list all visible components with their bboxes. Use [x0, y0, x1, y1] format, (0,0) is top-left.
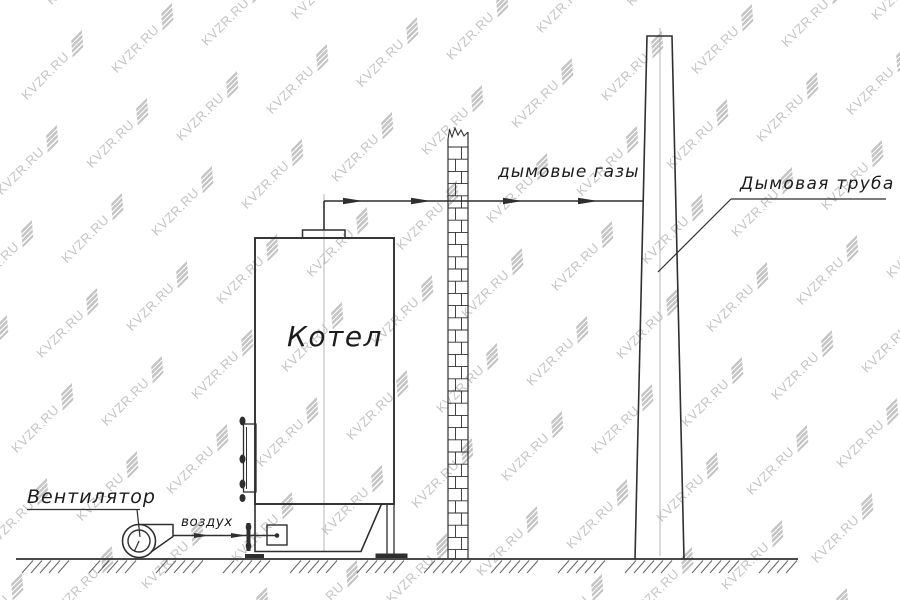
fan-label: Вентилятор	[27, 488, 156, 508]
air-flow-label: воздух	[181, 515, 233, 529]
support-foot-right	[376, 554, 408, 559]
fan-radial-line	[135, 541, 140, 551]
air-flow-line	[173, 533, 277, 538]
air-inlet-flange	[246, 523, 252, 551]
flue-duct	[324, 198, 643, 230]
chimney-label: Дымовая труба	[740, 176, 895, 194]
boiler-door	[240, 417, 257, 503]
boiler-schematic-page: KVZR.RUKVZR.RUKVZR.RUKVZR.RUKVZR.RUKVZR.…	[0, 0, 900, 600]
chimney-drawing	[635, 28, 684, 559]
support-foot-left	[245, 554, 264, 558]
ground-hatch	[22, 561, 797, 574]
boiler-drawing	[240, 194, 408, 558]
wall-break-line	[448, 128, 468, 139]
boiler-label: Котел	[287, 322, 383, 351]
brick-wall	[448, 128, 468, 559]
flue-gases-label: дымовые газы	[498, 164, 640, 182]
schematic-drawing	[0, 0, 900, 600]
fan-drawing	[123, 525, 174, 558]
chimney-label-callout	[658, 199, 886, 272]
brick-courses	[448, 147, 468, 559]
fan-label-callout	[27, 510, 140, 538]
